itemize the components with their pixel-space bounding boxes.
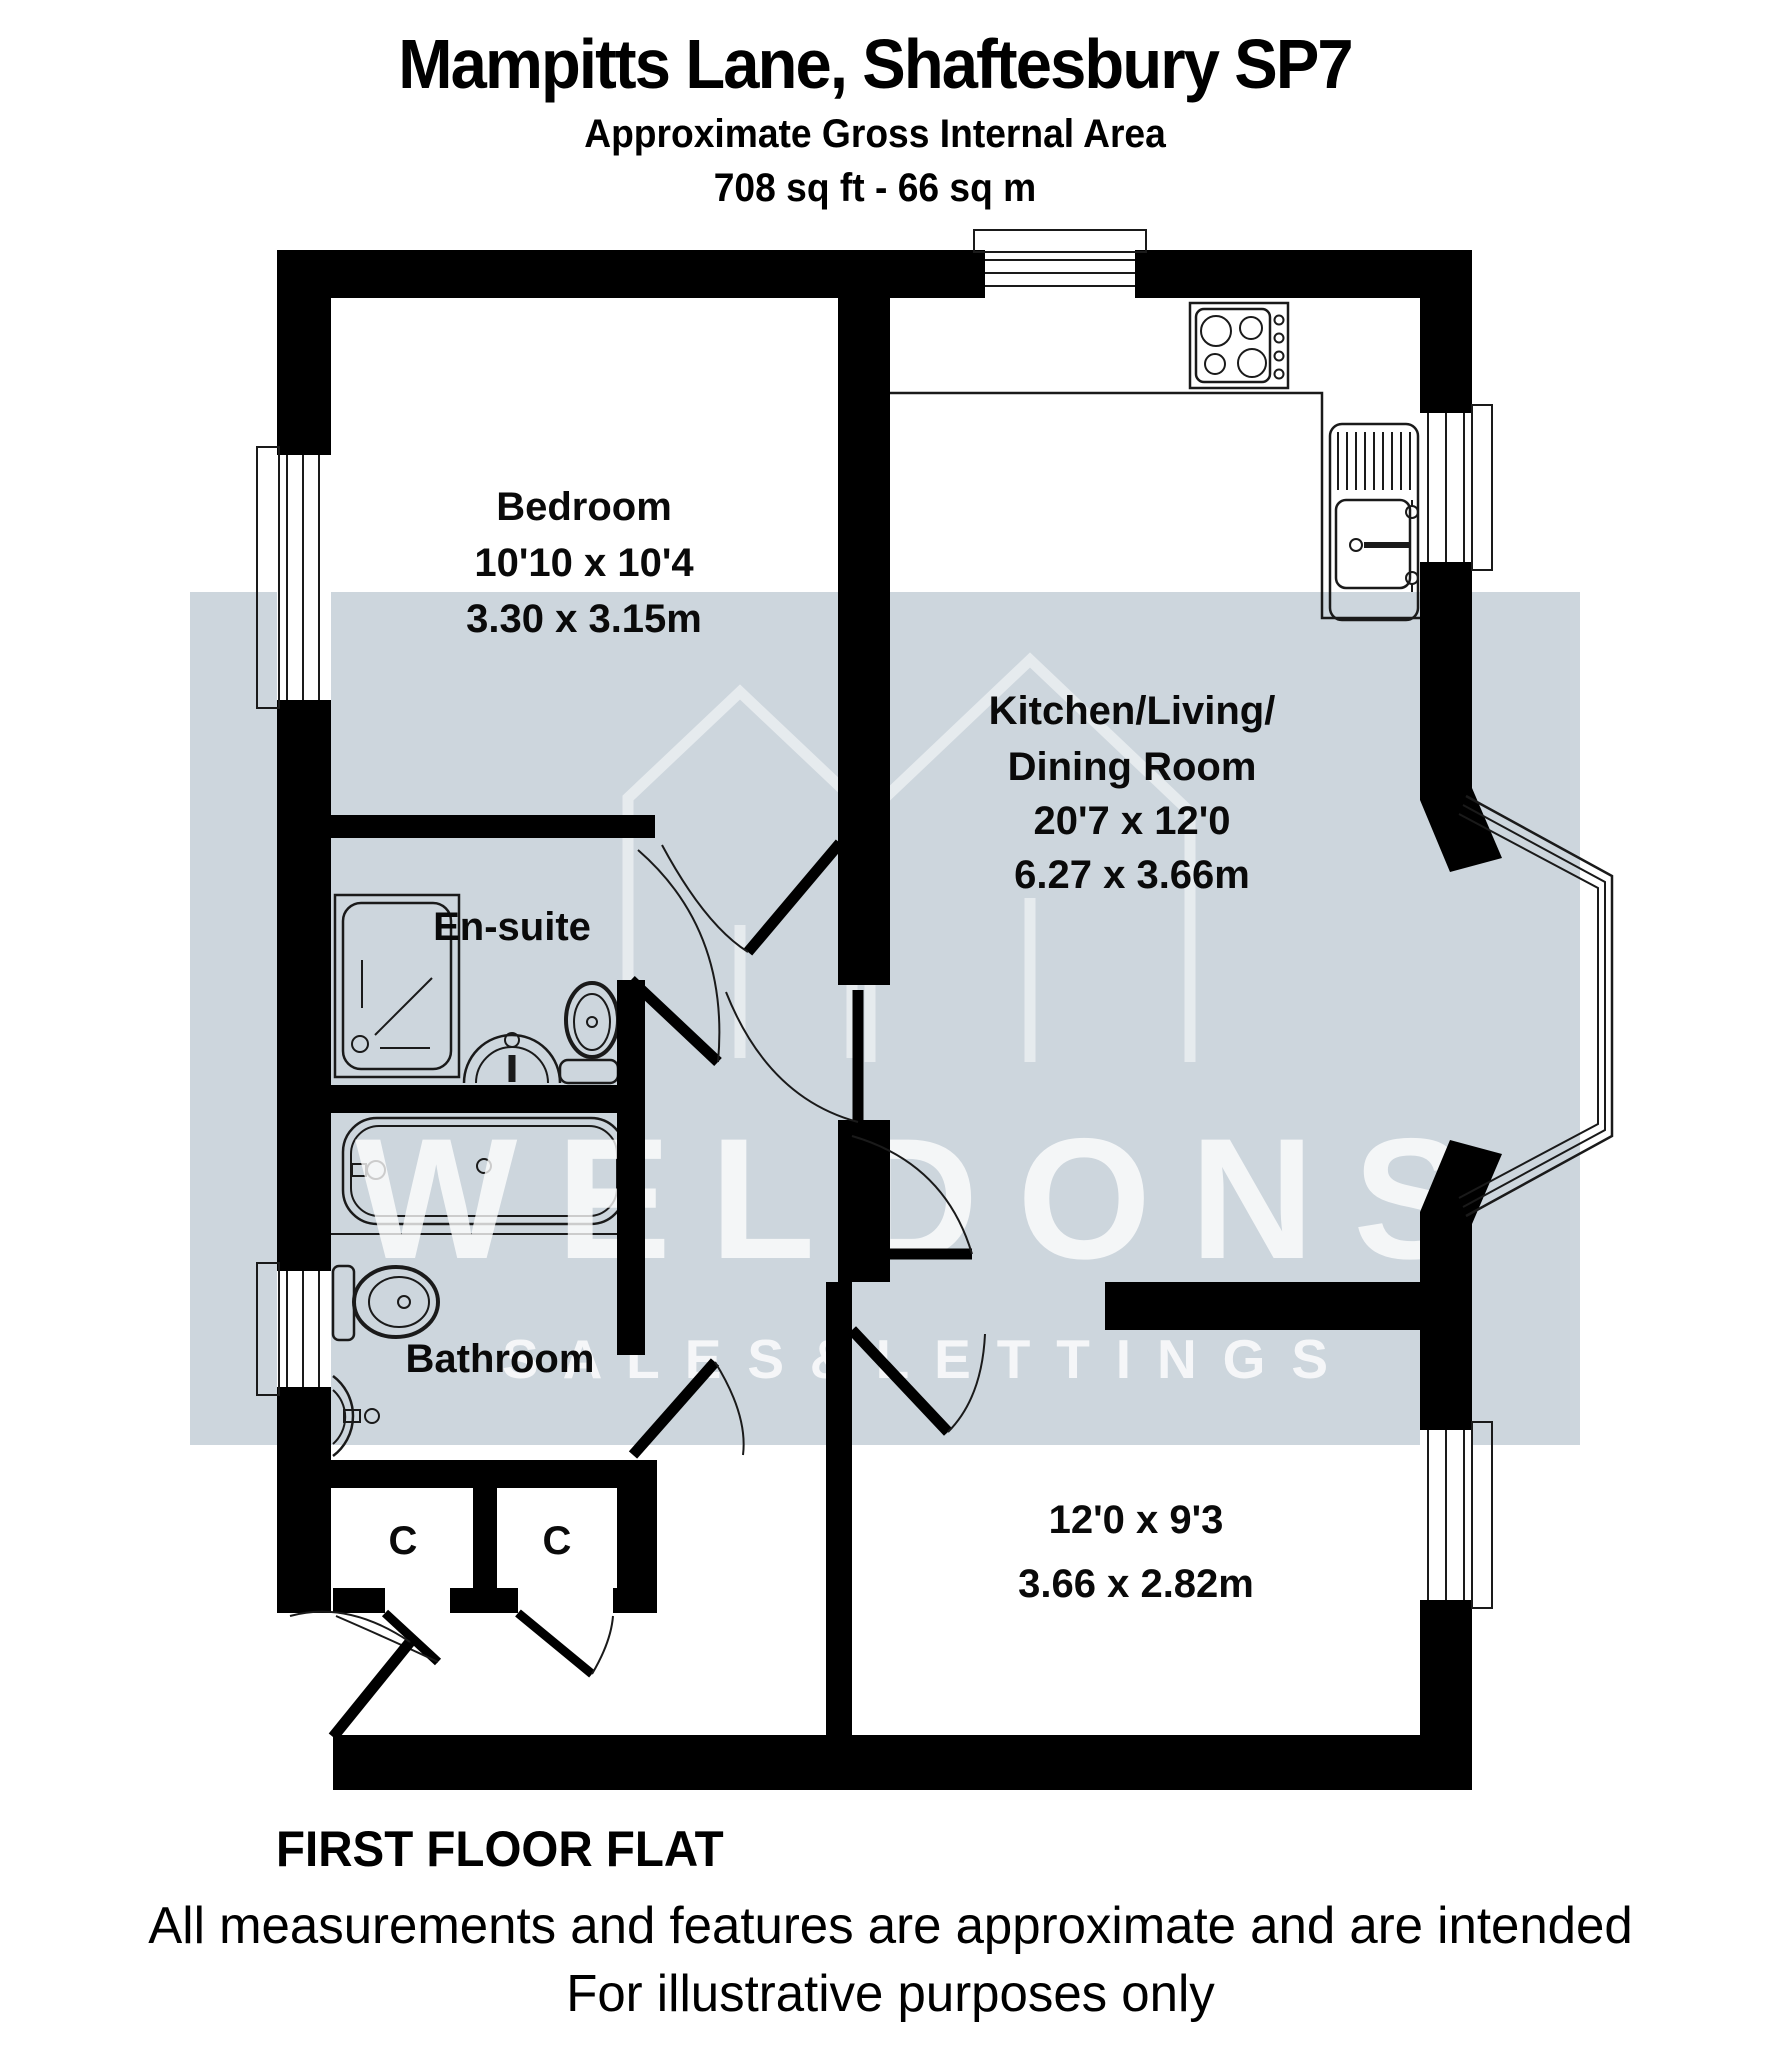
- kitchen-label-line1: Kitchen/Living/: [989, 689, 1276, 733]
- disclaimer-line1: All measurements and features are approx…: [18, 1896, 1763, 1956]
- cupboard-right-label: C: [543, 1519, 572, 1563]
- kitchen-counter: [890, 393, 1420, 618]
- bedroom-size-imperial: 10'10 x 10'4: [474, 541, 694, 585]
- floorplan-page: Mampitts Lane, Shaftesbury SP7 Approxima…: [0, 0, 1781, 2048]
- bedroom-label: Bedroom: [496, 485, 672, 529]
- ensuite-label: En-suite: [433, 905, 591, 949]
- kitchen-side-window: [1420, 405, 1492, 570]
- bathroom-label: Bathroom: [406, 1337, 595, 1381]
- cupboard-left-door: [336, 1613, 438, 1662]
- floorplan-drawing: WELDONS S A L E S & L E T T I N G S: [0, 0, 1781, 2048]
- cupboard-right-door: [518, 1613, 613, 1674]
- kitchen-size-metric: 6.27 x 3.66m: [1014, 853, 1250, 897]
- bedroom2-size-metric: 3.66 x 2.82m: [1018, 1562, 1254, 1606]
- hob-icon: [1190, 303, 1288, 388]
- kitchen-label-line2: Dining Room: [1008, 745, 1257, 789]
- bedroom-size-metric: 3.30 x 3.15m: [466, 597, 702, 641]
- cupboard-left-label: C: [389, 1519, 418, 1563]
- bedroom2-window: [1420, 1422, 1492, 1608]
- sink-icon: [1330, 424, 1418, 620]
- bedroom2-size-imperial: 12'0 x 9'3: [1049, 1498, 1224, 1542]
- kitchen-top-window: [974, 230, 1146, 298]
- entrance-door: [290, 1612, 410, 1737]
- floor-name: FIRST FLOOR FLAT: [276, 1820, 724, 1878]
- kitchen-size-imperial: 20'7 x 12'0: [1034, 799, 1231, 843]
- disclaimer-line2: For illustrative purposes only: [18, 1964, 1763, 2024]
